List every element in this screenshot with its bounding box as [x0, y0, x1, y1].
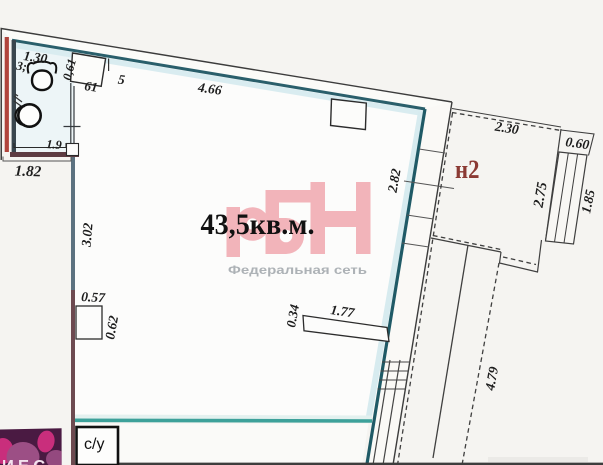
svg-text:43,5кв.м.: 43,5кв.м. — [201, 209, 315, 241]
svg-text:3.02: 3.02 — [78, 222, 95, 248]
svg-text:с/у: с/у — [84, 436, 104, 453]
svg-text:ИЕС: ИЕС — [2, 458, 49, 465]
svg-text:3;: 3; — [15, 58, 28, 73]
svg-text:Федеральная сеть: Федеральная сеть — [228, 265, 367, 277]
svg-text:1.9: 1.9 — [46, 137, 62, 152]
svg-text:0.57: 0.57 — [81, 289, 107, 305]
svg-text:61: 61 — [84, 78, 99, 95]
svg-text:1.82: 1.82 — [14, 163, 42, 181]
svg-text:н2: н2 — [455, 155, 480, 184]
